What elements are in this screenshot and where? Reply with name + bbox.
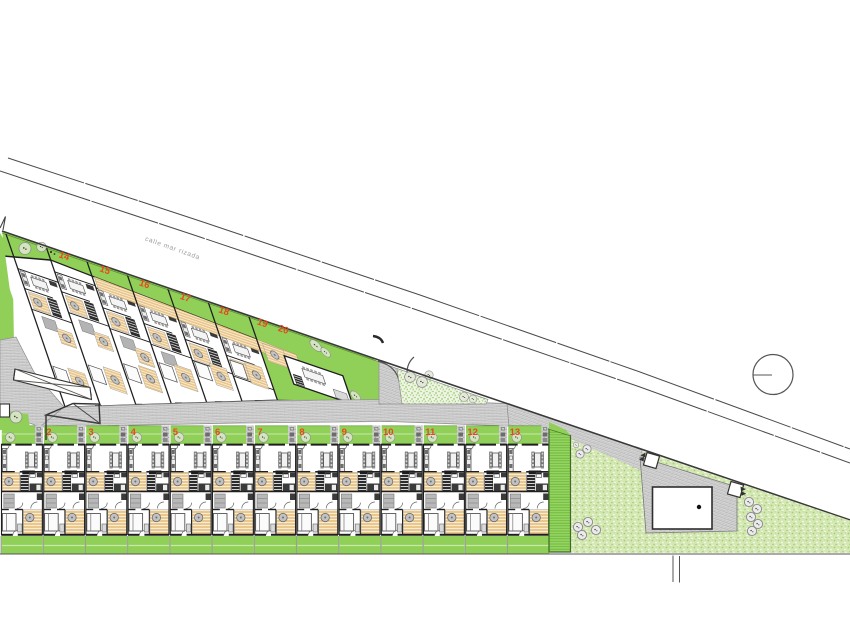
svg-text:6: 6 — [215, 427, 220, 438]
svg-text:3: 3 — [88, 427, 93, 438]
svg-text:4: 4 — [131, 427, 137, 438]
svg-text:8: 8 — [299, 427, 304, 438]
svg-text:12: 12 — [467, 427, 478, 438]
svg-text:9: 9 — [342, 427, 347, 438]
svg-text:13: 13 — [510, 427, 521, 438]
svg-text:2: 2 — [46, 427, 51, 438]
svg-text:7: 7 — [257, 427, 262, 438]
svg-text:11: 11 — [425, 427, 436, 438]
svg-text:10: 10 — [383, 427, 394, 438]
svg-text:5: 5 — [173, 427, 179, 438]
